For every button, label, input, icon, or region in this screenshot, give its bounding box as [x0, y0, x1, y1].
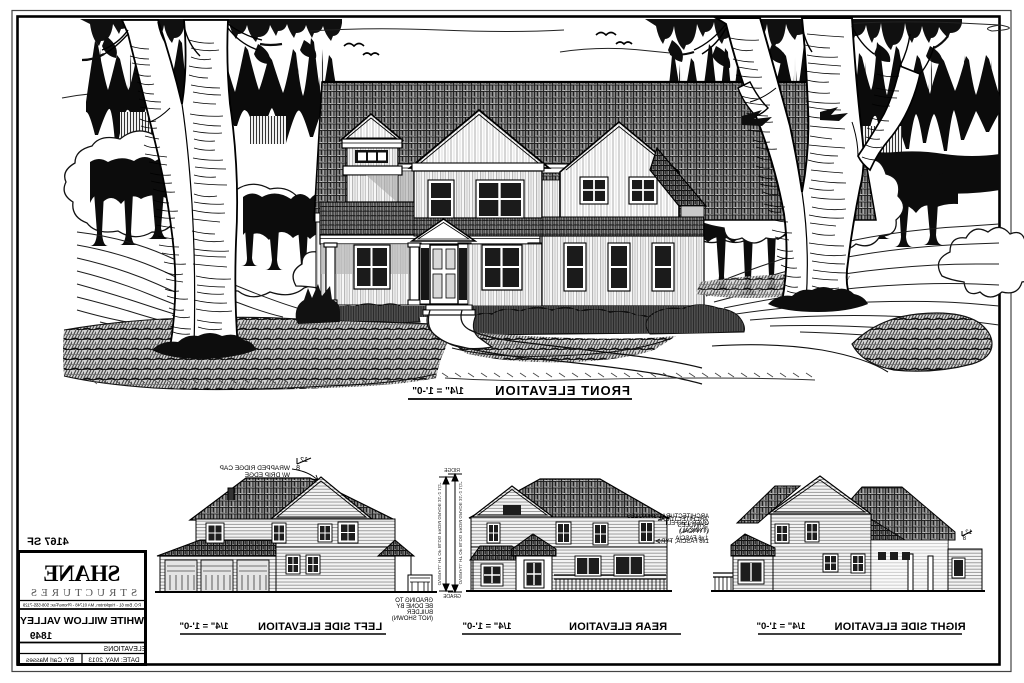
svg-text:REAR ELEVATION: REAR ELEVATION — [569, 621, 667, 633]
svg-text:1x6 FASCIA: 1x6 FASCIA — [675, 536, 708, 542]
svg-text:RIDGE: RIDGE — [443, 468, 460, 474]
svg-text:GRADE: GRADE — [442, 594, 460, 600]
svg-text:WHITE WILLOW VALLEY: WHITE WILLOW VALLEY — [20, 615, 144, 627]
svg-text:1/4" = 1'-0": 1/4" = 1'-0" — [179, 621, 228, 632]
svg-text:1/4" = 1'-0": 1/4" = 1'-0" — [462, 621, 511, 632]
svg-text:BY: Carl Masses: BY: Carl Masses — [25, 657, 74, 664]
svg-text:RIGHT SIDE ELEVATION: RIGHT SIDE ELEVATION — [834, 621, 965, 633]
svg-text:P.O. Box 61 - Hopkinton, MA 01: P.O. Box 61 - Hopkinton, MA 01748 - Phon… — [22, 603, 141, 608]
svg-text:SHANE: SHANE — [43, 561, 120, 586]
svg-text:4167 SF: 4167 SF — [27, 536, 69, 548]
svg-text:1849: 1849 — [29, 631, 52, 642]
svg-text:(NOT SHOWN): (NOT SHOWN) — [392, 616, 433, 622]
svg-text:ELEVATIONS: ELEVATIONS — [103, 646, 146, 653]
svg-text:(TYPICAL): (TYPICAL) — [679, 529, 708, 535]
svg-text:1/4" = 1'-0": 1/4" = 1'-0" — [756, 621, 805, 632]
svg-text:DATE: MAY, 2013: DATE: MAY, 2013 — [88, 657, 140, 664]
svg-text:FRONT ELEVATION: FRONT ELEVATION — [494, 383, 630, 398]
svg-text:OVERALL HT OF BLDG FROM GRADE: OVERALL HT OF BLDG FROM GRADE 31'-2 1/2" — [437, 482, 442, 585]
svg-text:W/ DRIP EDGE: W/ DRIP EDGE — [244, 472, 290, 479]
svg-text:8: 8 — [296, 465, 300, 472]
svg-text:1/4" = 1'-0": 1/4" = 1'-0" — [412, 386, 464, 397]
svg-text:WRAPPED RIDGE CAP: WRAPPED RIDGE CAP — [220, 465, 290, 472]
svg-text:12: 12 — [300, 457, 308, 464]
svg-text:STRUCTURES: STRUCTURES — [27, 587, 137, 599]
svg-text:LEFT SIDE ELEVATION: LEFT SIDE ELEVATION — [258, 621, 382, 633]
svg-text:OVERALL HT OF BLDG FROM GRADE: OVERALL HT OF BLDG FROM GRADE 31'-2 1/2" — [458, 481, 463, 584]
